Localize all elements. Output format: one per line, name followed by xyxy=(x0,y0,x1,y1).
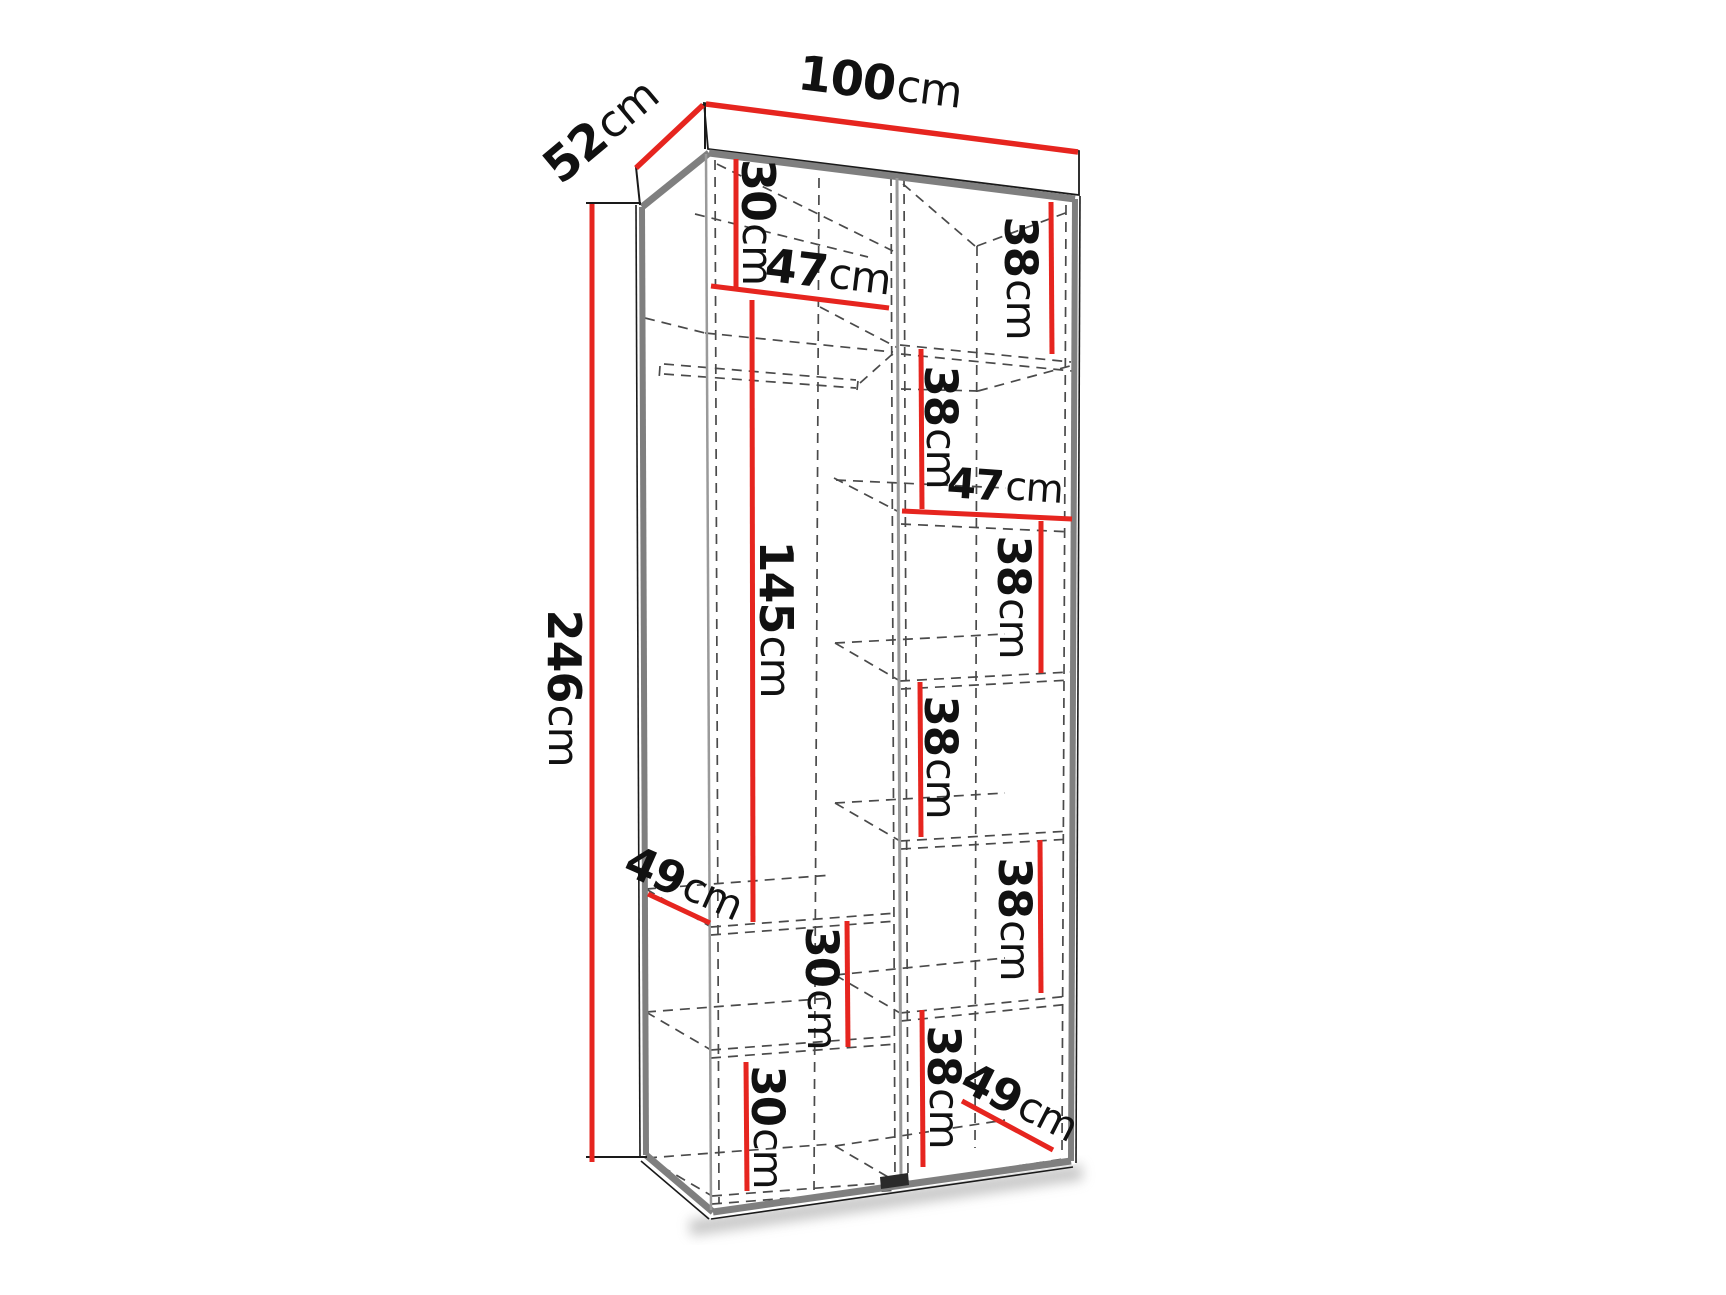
dimension-line-right-38-1 xyxy=(1051,202,1052,354)
hidden-edge-rod-cap-right xyxy=(857,381,858,390)
dimension-label-hanging-145: 145cm xyxy=(749,540,803,697)
dimension-label-height-246: 246cm xyxy=(537,609,591,766)
carcass-right-edge xyxy=(1071,199,1075,1161)
wardrobe-dimension-diagram: 100cm52cm246cm30cm47cm145cm38cm38cm47cm3… xyxy=(0,0,1726,1295)
diagram-page: 100cm52cm246cm30cm47cm145cm38cm38cm47cm3… xyxy=(0,0,1726,1295)
carcass-left-edge xyxy=(642,207,646,1155)
